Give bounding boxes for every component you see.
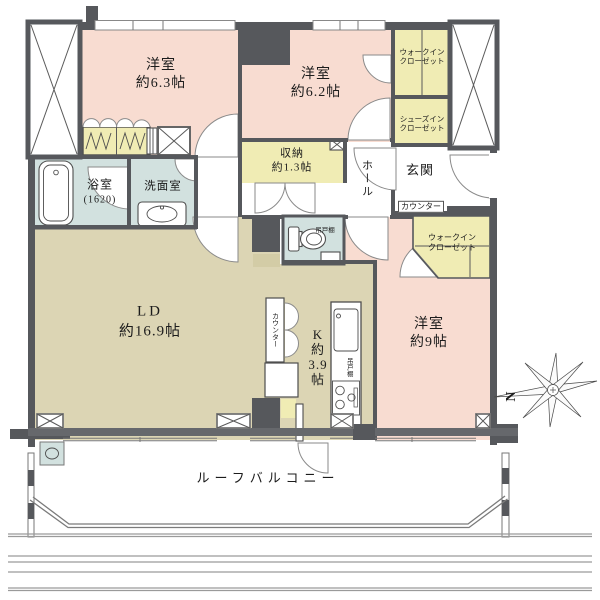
room-label-bedroom-right: 洋室 約9帖 — [410, 316, 448, 352]
corridor-floor — [198, 159, 238, 217]
compass-north-label: N — [503, 390, 521, 401]
closet-label-wic-north: ウォークイン クローゼット — [400, 48, 445, 67]
refrigerator-space — [265, 363, 298, 397]
duct-box-icon — [158, 127, 190, 155]
kitchen-counter-label: カウンター — [272, 313, 279, 348]
entrance-counter-label: カウンター — [398, 201, 444, 213]
room-label-living-dining: LD 約16.9帖 — [119, 303, 181, 342]
shaft-left — [28, 22, 80, 157]
room-label-bedroom-top-left: 洋室 約6.3帖 — [136, 57, 187, 93]
closet-label-wic-south: ウォークイン クローゼット — [428, 233, 476, 253]
room-label-hall: ホール — [361, 160, 372, 199]
floor-plan: 洋室 約6.3帖 洋室 約6.2帖 洋室 約9帖 LD 約16.9帖 K 約 3… — [0, 0, 600, 600]
room-label-kitchen: K 約 3.9 帖 — [308, 328, 327, 388]
kitchen-cupboard-label: 吊戸棚 — [345, 357, 352, 377]
pillar-kitchen — [252, 398, 280, 431]
room-label-bathroom: 浴室 (1620) — [84, 178, 117, 207]
louver-icon — [147, 128, 157, 154]
shaft-right — [450, 22, 497, 148]
door-kitchen-balcony — [298, 443, 328, 473]
room-label-bedroom-top-middle: 洋室 約6.2帖 — [291, 66, 342, 102]
balcony-rail — [33, 496, 505, 524]
balcony-faucet-icon — [40, 442, 64, 465]
room-label-entrance: 玄関 — [406, 163, 434, 180]
closet-label-sic: シューズイン クローゼット — [400, 115, 445, 134]
toilet-cupboard-label: 吊戸棚 — [315, 227, 335, 235]
pillar-top — [240, 22, 290, 65]
balcony-label: ルーフバルコニー — [197, 471, 340, 488]
room-label-washroom: 洗面室 — [144, 180, 182, 195]
room-label-storage: 収納 約1.3帖 — [272, 147, 313, 176]
counter-passthrough-icon — [265, 298, 299, 397]
balcony — [8, 442, 592, 591]
pillar-mid — [252, 218, 280, 252]
